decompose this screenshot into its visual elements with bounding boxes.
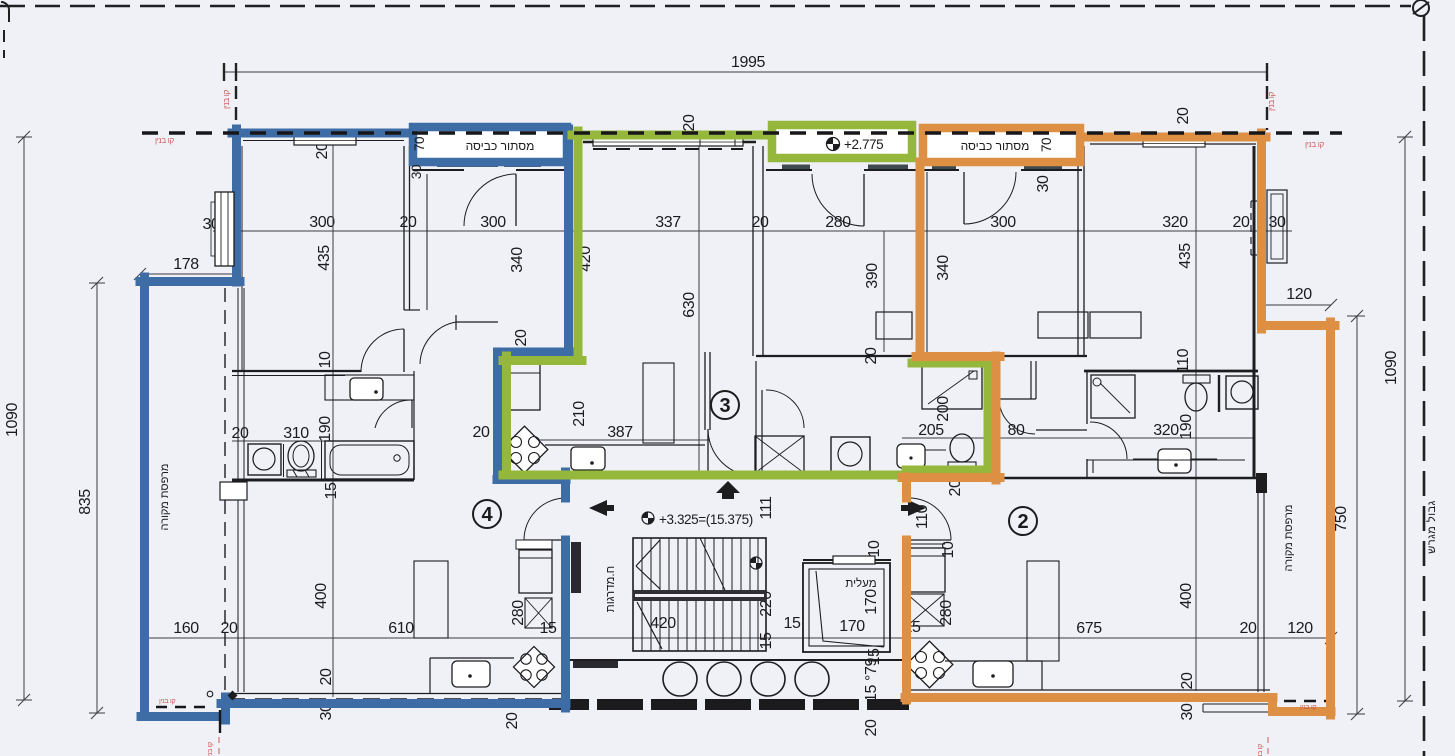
svg-text:קו בנין: קו בנין xyxy=(159,698,176,705)
svg-text:15: 15 xyxy=(866,648,883,665)
svg-text:קו בנין: קו בנין xyxy=(1300,704,1317,711)
svg-text:15: 15 xyxy=(323,482,340,499)
svg-text:20: 20 xyxy=(863,719,880,736)
svg-text:420: 420 xyxy=(650,615,676,632)
svg-text:4: 4 xyxy=(481,504,493,526)
svg-text:20: 20 xyxy=(513,329,530,346)
svg-text:30: 30 xyxy=(1035,175,1052,192)
svg-text:מעלית: מעלית xyxy=(845,577,876,590)
svg-text:300: 300 xyxy=(309,214,335,231)
svg-text:20: 20 xyxy=(681,114,698,131)
svg-text:15: 15 xyxy=(784,615,801,632)
svg-text:400: 400 xyxy=(1178,583,1195,609)
svg-text:20: 20 xyxy=(232,425,249,442)
svg-text:630: 630 xyxy=(681,292,698,318)
svg-text:280: 280 xyxy=(938,600,955,626)
svg-text:190: 190 xyxy=(1178,414,1195,440)
svg-text:2: 2 xyxy=(1017,511,1028,533)
svg-text:20: 20 xyxy=(318,668,335,685)
svg-text:70: 70 xyxy=(412,137,427,151)
svg-text:750: 750 xyxy=(1333,506,1350,532)
svg-text:70: 70 xyxy=(1039,138,1054,152)
svg-text:280: 280 xyxy=(825,214,851,231)
svg-text:340: 340 xyxy=(935,255,952,281)
svg-text:30: 30 xyxy=(409,165,424,179)
svg-text:178: 178 xyxy=(173,256,199,273)
svg-text:340: 340 xyxy=(509,247,526,273)
svg-text:30: 30 xyxy=(1179,703,1196,720)
svg-text:170: 170 xyxy=(839,618,865,635)
svg-text:120: 120 xyxy=(1286,286,1312,303)
svg-text:120: 120 xyxy=(1287,620,1313,637)
svg-text:10: 10 xyxy=(317,351,334,368)
svg-text:20: 20 xyxy=(504,712,521,729)
svg-text:20: 20 xyxy=(1179,672,1196,689)
svg-text:310: 310 xyxy=(283,425,309,442)
svg-text:835: 835 xyxy=(77,489,94,515)
svg-text:3: 3 xyxy=(719,395,730,417)
svg-text:610: 610 xyxy=(388,620,414,637)
svg-text:קו בנין: קו בנין xyxy=(1305,140,1325,149)
svg-text:קו בנין: קו בנין xyxy=(1257,744,1264,756)
svg-text:111: 111 xyxy=(758,496,775,520)
svg-text:+3.325=(15.375): +3.325=(15.375) xyxy=(659,512,753,527)
svg-text:גבול מגרש: גבול מגרש xyxy=(1425,500,1438,554)
svg-text:20: 20 xyxy=(221,620,238,637)
svg-text:מרפסת מקורה: מרפסת מקורה xyxy=(1283,505,1295,572)
svg-text:20: 20 xyxy=(400,214,417,231)
svg-text:300: 300 xyxy=(990,214,1016,231)
svg-text:390: 390 xyxy=(864,263,881,289)
svg-text:קו בנין: קו בנין xyxy=(155,136,175,145)
svg-text:+2.775: +2.775 xyxy=(844,137,883,152)
svg-text:435: 435 xyxy=(1177,243,1194,269)
svg-text:מסתור כביסה: מסתור כביסה xyxy=(961,139,1030,153)
svg-text:210: 210 xyxy=(571,401,588,427)
svg-text:205: 205 xyxy=(918,422,944,439)
svg-text:190: 190 xyxy=(317,416,334,442)
svg-text:ח.מדרגות: ח.מדרגות xyxy=(605,566,617,612)
svg-text:300: 300 xyxy=(480,214,506,231)
svg-text:20: 20 xyxy=(752,214,769,231)
svg-text:20: 20 xyxy=(473,424,490,441)
svg-text:435: 435 xyxy=(316,245,333,271)
svg-text:110: 110 xyxy=(1175,348,1192,373)
svg-text:20: 20 xyxy=(1240,620,1257,637)
svg-text:320: 320 xyxy=(1162,214,1188,231)
svg-text:1090: 1090 xyxy=(1383,351,1400,385)
svg-text:20: 20 xyxy=(1175,107,1192,124)
svg-text:387: 387 xyxy=(607,424,633,441)
svg-text:400: 400 xyxy=(313,583,330,609)
svg-text:1090: 1090 xyxy=(4,403,21,437)
svg-text:170: 170 xyxy=(863,589,880,615)
svg-text:20: 20 xyxy=(1233,214,1250,231)
svg-text:160: 160 xyxy=(173,620,199,637)
svg-text:10: 10 xyxy=(866,540,883,557)
svg-text:320: 320 xyxy=(1153,422,1179,439)
svg-text:קו בנין: קו בנין xyxy=(222,89,231,109)
svg-text:קו בנין: קו בנין xyxy=(207,742,214,756)
svg-text:קו בנין: קו בנין xyxy=(1267,91,1276,111)
svg-text:675: 675 xyxy=(1076,620,1102,637)
svg-text:מסתור כביסה: מסתור כביסה xyxy=(466,139,535,153)
svg-text:מרפסת מקורה: מרפסת מקורה xyxy=(159,464,171,531)
svg-text:1995: 1995 xyxy=(731,54,765,71)
svg-text:337: 337 xyxy=(655,214,681,231)
